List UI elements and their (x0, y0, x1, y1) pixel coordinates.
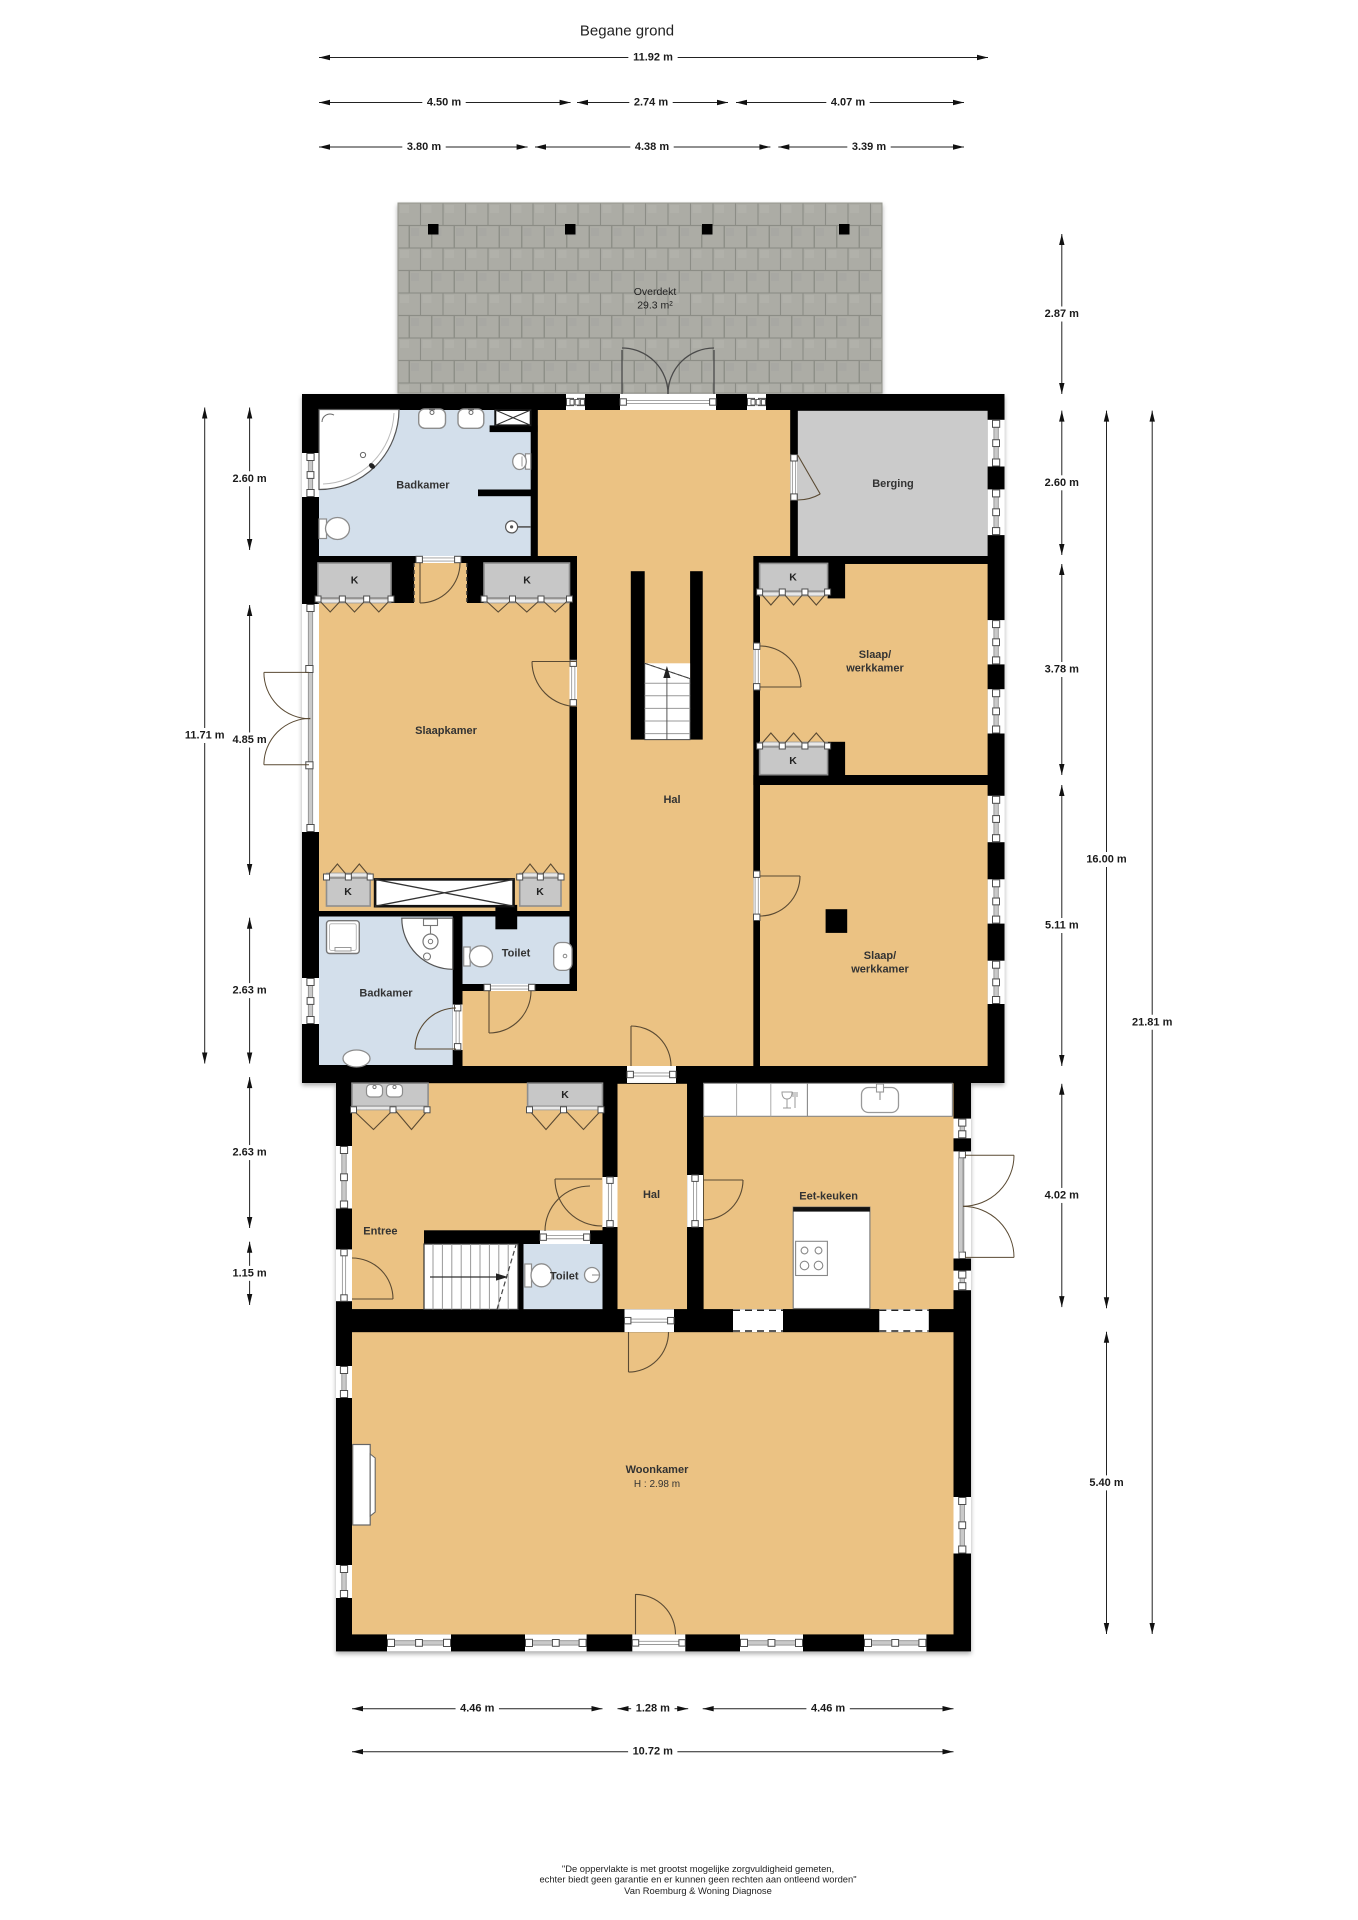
svg-text:K: K (523, 575, 531, 587)
svg-text:Woonkamer: Woonkamer (626, 1464, 689, 1476)
svg-text:Slaap/: Slaap/ (859, 649, 891, 661)
svg-text:3.80 m: 3.80 m (407, 141, 441, 153)
svg-text:4.07 m: 4.07 m (831, 97, 865, 109)
svg-text:K: K (344, 886, 352, 898)
svg-text:K: K (351, 575, 359, 587)
svg-text:Badkamer: Badkamer (359, 988, 413, 1000)
svg-text:4.50 m: 4.50 m (427, 97, 461, 109)
svg-text:11.92 m: 11.92 m (633, 52, 673, 64)
svg-text:5.11 m: 5.11 m (1045, 920, 1079, 932)
svg-text:21.81 m: 21.81 m (1132, 1016, 1173, 1028)
svg-text:10.72 m: 10.72 m (633, 1746, 674, 1758)
svg-text:Slaapkamer: Slaapkamer (415, 725, 477, 737)
svg-text:echter biedt geen garantie en: echter biedt geen garantie en er kunnen … (539, 1874, 856, 1885)
svg-text:Hal: Hal (643, 1189, 660, 1201)
svg-text:K: K (789, 571, 797, 583)
svg-text:2.63 m: 2.63 m (232, 1147, 266, 1159)
svg-text:3.78 m: 3.78 m (1045, 664, 1079, 676)
svg-text:Begane grond: Begane grond (580, 23, 674, 40)
svg-text:K: K (561, 1089, 569, 1101)
svg-text:4.02 m: 4.02 m (1045, 1189, 1079, 1201)
svg-text:K: K (536, 886, 544, 898)
svg-text:11.71 m: 11.71 m (185, 730, 225, 742)
svg-text:Entree: Entree (363, 1226, 397, 1238)
svg-text:werkkamer: werkkamer (845, 663, 904, 675)
svg-text:2.87 m: 2.87 m (1045, 308, 1079, 320)
svg-text:2.60 m: 2.60 m (232, 473, 266, 485)
svg-text:Berging: Berging (872, 478, 914, 490)
svg-text:Overdekt: Overdekt (634, 286, 677, 298)
svg-text:1.28 m: 1.28 m (636, 1703, 670, 1715)
svg-text:Badkamer: Badkamer (396, 480, 450, 492)
svg-text:Toilet: Toilet (502, 948, 531, 960)
svg-text:3.39 m: 3.39 m (852, 141, 886, 153)
svg-text:K: K (789, 755, 797, 767)
svg-text:1.15 m: 1.15 m (232, 1267, 266, 1279)
svg-text:29.3 m²: 29.3 m² (637, 300, 673, 312)
svg-text:16.00 m: 16.00 m (1086, 853, 1127, 865)
svg-text:4.38 m: 4.38 m (635, 141, 669, 153)
svg-text:4.46 m: 4.46 m (811, 1703, 845, 1715)
svg-text:Toilet: Toilet (550, 1271, 579, 1283)
svg-text:2.60 m: 2.60 m (1045, 477, 1079, 489)
svg-text:H : 2.98 m: H : 2.98 m (634, 1479, 680, 1490)
svg-text:2.63 m: 2.63 m (232, 985, 266, 997)
svg-text:4.46 m: 4.46 m (460, 1703, 494, 1715)
svg-text:"De oppervlakte is met grootst: "De oppervlakte is met grootst mogelijke… (562, 1863, 834, 1874)
svg-text:Slaap/: Slaap/ (864, 950, 896, 962)
svg-text:Hal: Hal (663, 794, 680, 806)
svg-text:4.85 m: 4.85 m (232, 734, 266, 746)
svg-text:Eet-keuken: Eet-keuken (799, 1191, 858, 1203)
svg-text:2.74 m: 2.74 m (634, 97, 668, 109)
svg-text:werkkamer: werkkamer (850, 964, 909, 976)
svg-text:Van Roemburg & Woning Diagnose: Van Roemburg & Woning Diagnose (624, 1885, 772, 1896)
svg-text:5.40 m: 5.40 m (1089, 1477, 1123, 1489)
